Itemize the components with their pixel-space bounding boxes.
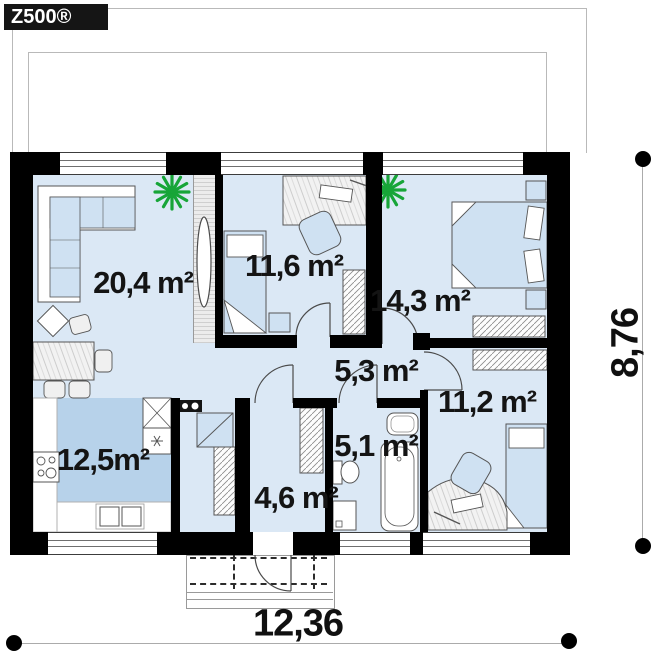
wardrobe [343, 270, 365, 334]
desk [283, 176, 384, 225]
brand-logo: Z500® [4, 4, 108, 30]
wardrobe [473, 316, 545, 337]
nightstand [526, 181, 546, 200]
dimension-dot [561, 633, 577, 649]
nightstand [269, 313, 290, 332]
plant-icon [155, 175, 189, 209]
furniture-layer [0, 0, 655, 653]
room-label-bedroom-right: 11,2 m² [438, 384, 536, 420]
dimension-dot [635, 151, 651, 167]
dimension-height-label: 8,76 [605, 308, 648, 378]
dining-table [33, 342, 112, 398]
room-label-bathroom: 5,1 m² [334, 428, 418, 464]
room-label-bedroom-left: 11,6 m² [245, 248, 343, 284]
entrance-door-swing [255, 555, 291, 591]
plant-icon [371, 173, 405, 207]
door-swing [255, 365, 293, 403]
wardrobe [300, 408, 323, 473]
room-label-bedroom-master: 14,3 m² [370, 283, 470, 319]
fridge [143, 398, 171, 428]
bed [506, 424, 547, 528]
dimension-dot [6, 635, 22, 651]
shower-tray [197, 413, 233, 447]
stove [33, 452, 59, 482]
double-bed [452, 202, 547, 288]
boiler [178, 400, 202, 412]
coffee-table [37, 305, 92, 336]
wardrobe [473, 350, 547, 370]
nightstand [526, 290, 546, 309]
room-label-kitchen: 12,5m² [57, 442, 149, 478]
dimension-dot [635, 538, 651, 554]
door-swing [296, 303, 330, 337]
room-label-living: 20,4 m² [93, 265, 193, 301]
room-label-entry: 4,6 m² [254, 480, 338, 516]
sliding-door-leaf [197, 217, 211, 307]
floor-plan: 20,4 m² 11,6 m² 14,3 m² 5,3 m² 11,2 m² 1… [0, 0, 655, 653]
wardrobe [214, 447, 235, 515]
dimension-width-label: 12,36 [253, 603, 343, 646]
room-label-hallway: 5,3 m² [334, 353, 418, 389]
